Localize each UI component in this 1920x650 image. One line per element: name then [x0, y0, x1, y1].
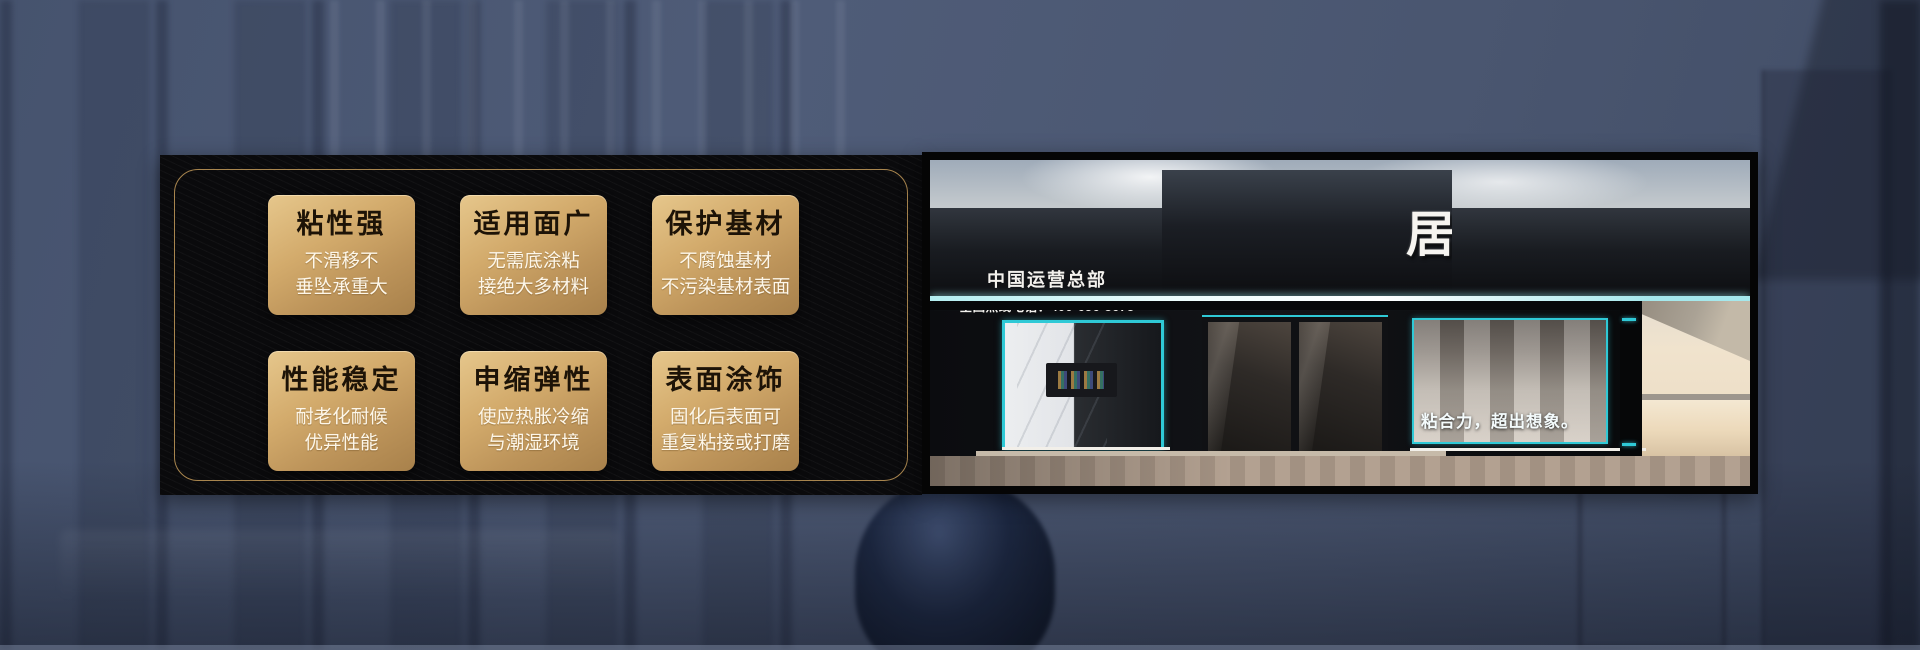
- card-title: 保护基材: [652, 208, 799, 240]
- background-vase: [855, 478, 1055, 650]
- feature-card-grid: 粘性强 不滑移不 垂坠承重大 适用面广 无需底涂粘 接绝大多材料 保护基材 不腐…: [268, 195, 799, 471]
- door-pane-left: [1208, 322, 1291, 451]
- feature-card-wide-use: 适用面广 无需底涂粘 接绝大多材料: [460, 195, 607, 315]
- product-display-board: [1046, 363, 1118, 398]
- storefront-render: 中国运营总部 全国热线电话：400-656-8678 居美匠 钢钉胶 新一代技术…: [930, 160, 1750, 486]
- window-sill: [1002, 447, 1170, 450]
- card-desc-line: 不滑移不: [268, 248, 415, 274]
- hq-label: 中国运营总部: [938, 266, 1156, 292]
- roof-underside: [1642, 301, 1750, 361]
- feature-card-elasticity: 申缩弹性 使应热胀冷缩 与潮湿环境: [460, 351, 607, 471]
- card-desc-line: 与潮湿环境: [460, 430, 607, 456]
- display-window-right: 粘合力，超出想象。: [1412, 318, 1608, 444]
- card-desc-line: 垂坠承重大: [268, 274, 415, 300]
- sign-band-right: |开启环保之美|: [1452, 208, 1750, 296]
- feature-card-surface-finish: 表面涂饰 固化后表面可 重复粘接或打磨: [652, 351, 799, 471]
- card-title: 适用面广: [460, 208, 607, 240]
- card-desc-line: 优异性能: [268, 430, 415, 456]
- teal-accent-light: [1622, 443, 1636, 446]
- display-window-left: [1002, 320, 1164, 450]
- door-pane-right: [1299, 322, 1382, 451]
- card-desc-line: 不腐蚀基材: [652, 248, 799, 274]
- background-wall-shadow: [1753, 0, 1920, 280]
- background-floor-highlight: [0, 645, 1920, 650]
- features-panel: 粘性强 不滑移不 垂坠承重大 适用面广 无需底涂粘 接绝大多材料 保护基材 不腐…: [160, 155, 922, 495]
- card-desc-line: 接绝大多材料: [460, 274, 607, 300]
- color-swatches: [1058, 371, 1104, 388]
- card-title: 性能稳定: [268, 364, 415, 396]
- paved-ground-shadow: [930, 456, 1230, 486]
- teal-accent-light: [1622, 318, 1636, 321]
- background-cabinet: [1762, 70, 1892, 650]
- card-desc-line: 不污染基材表面: [652, 274, 799, 300]
- sunlit-ground: [1628, 400, 1750, 456]
- card-title: 表面涂饰: [652, 364, 799, 396]
- card-desc-line: 无需底涂粘: [460, 248, 607, 274]
- background-table-silhouette: [60, 530, 620, 600]
- promo-banner: 粘性强 不滑移不 垂坠承重大 适用面广 无需底涂粘 接绝大多材料 保护基材 不腐…: [0, 0, 1920, 650]
- feature-card-protect-substrate: 保护基材 不腐蚀基材 不污染基材表面: [652, 195, 799, 315]
- background-right-edge: [1880, 0, 1920, 650]
- card-title: 申缩弹性: [460, 364, 607, 396]
- building-corner-column: [1620, 310, 1642, 456]
- storefront-image: 中国运营总部 全国热线电话：400-656-8678 居美匠 钢钉胶 新一代技术…: [922, 152, 1758, 494]
- card-desc-line: 使应热胀冷缩: [460, 404, 607, 430]
- card-desc-line: 耐老化耐候: [268, 404, 415, 430]
- feature-card-stable-performance: 性能稳定 耐老化耐候 优异性能: [268, 351, 415, 471]
- feature-card-adhesion: 粘性强 不滑移不 垂坠承重大: [268, 195, 415, 315]
- sign-band-center: 居美匠 钢钉胶 新一代技术: [1162, 170, 1452, 296]
- card-title: 粘性强: [268, 208, 415, 240]
- sign-band-left: 中国运营总部 全国热线电话：400-656-8678: [930, 208, 1162, 296]
- card-desc-line: 重复粘接或打磨: [652, 430, 799, 456]
- glass-entrance-doors: [1202, 315, 1388, 456]
- soffit-shadow: [930, 301, 1642, 310]
- card-desc-line: 固化后表面可: [652, 404, 799, 430]
- window-slogan: 粘合力，超出想象。: [1421, 408, 1579, 432]
